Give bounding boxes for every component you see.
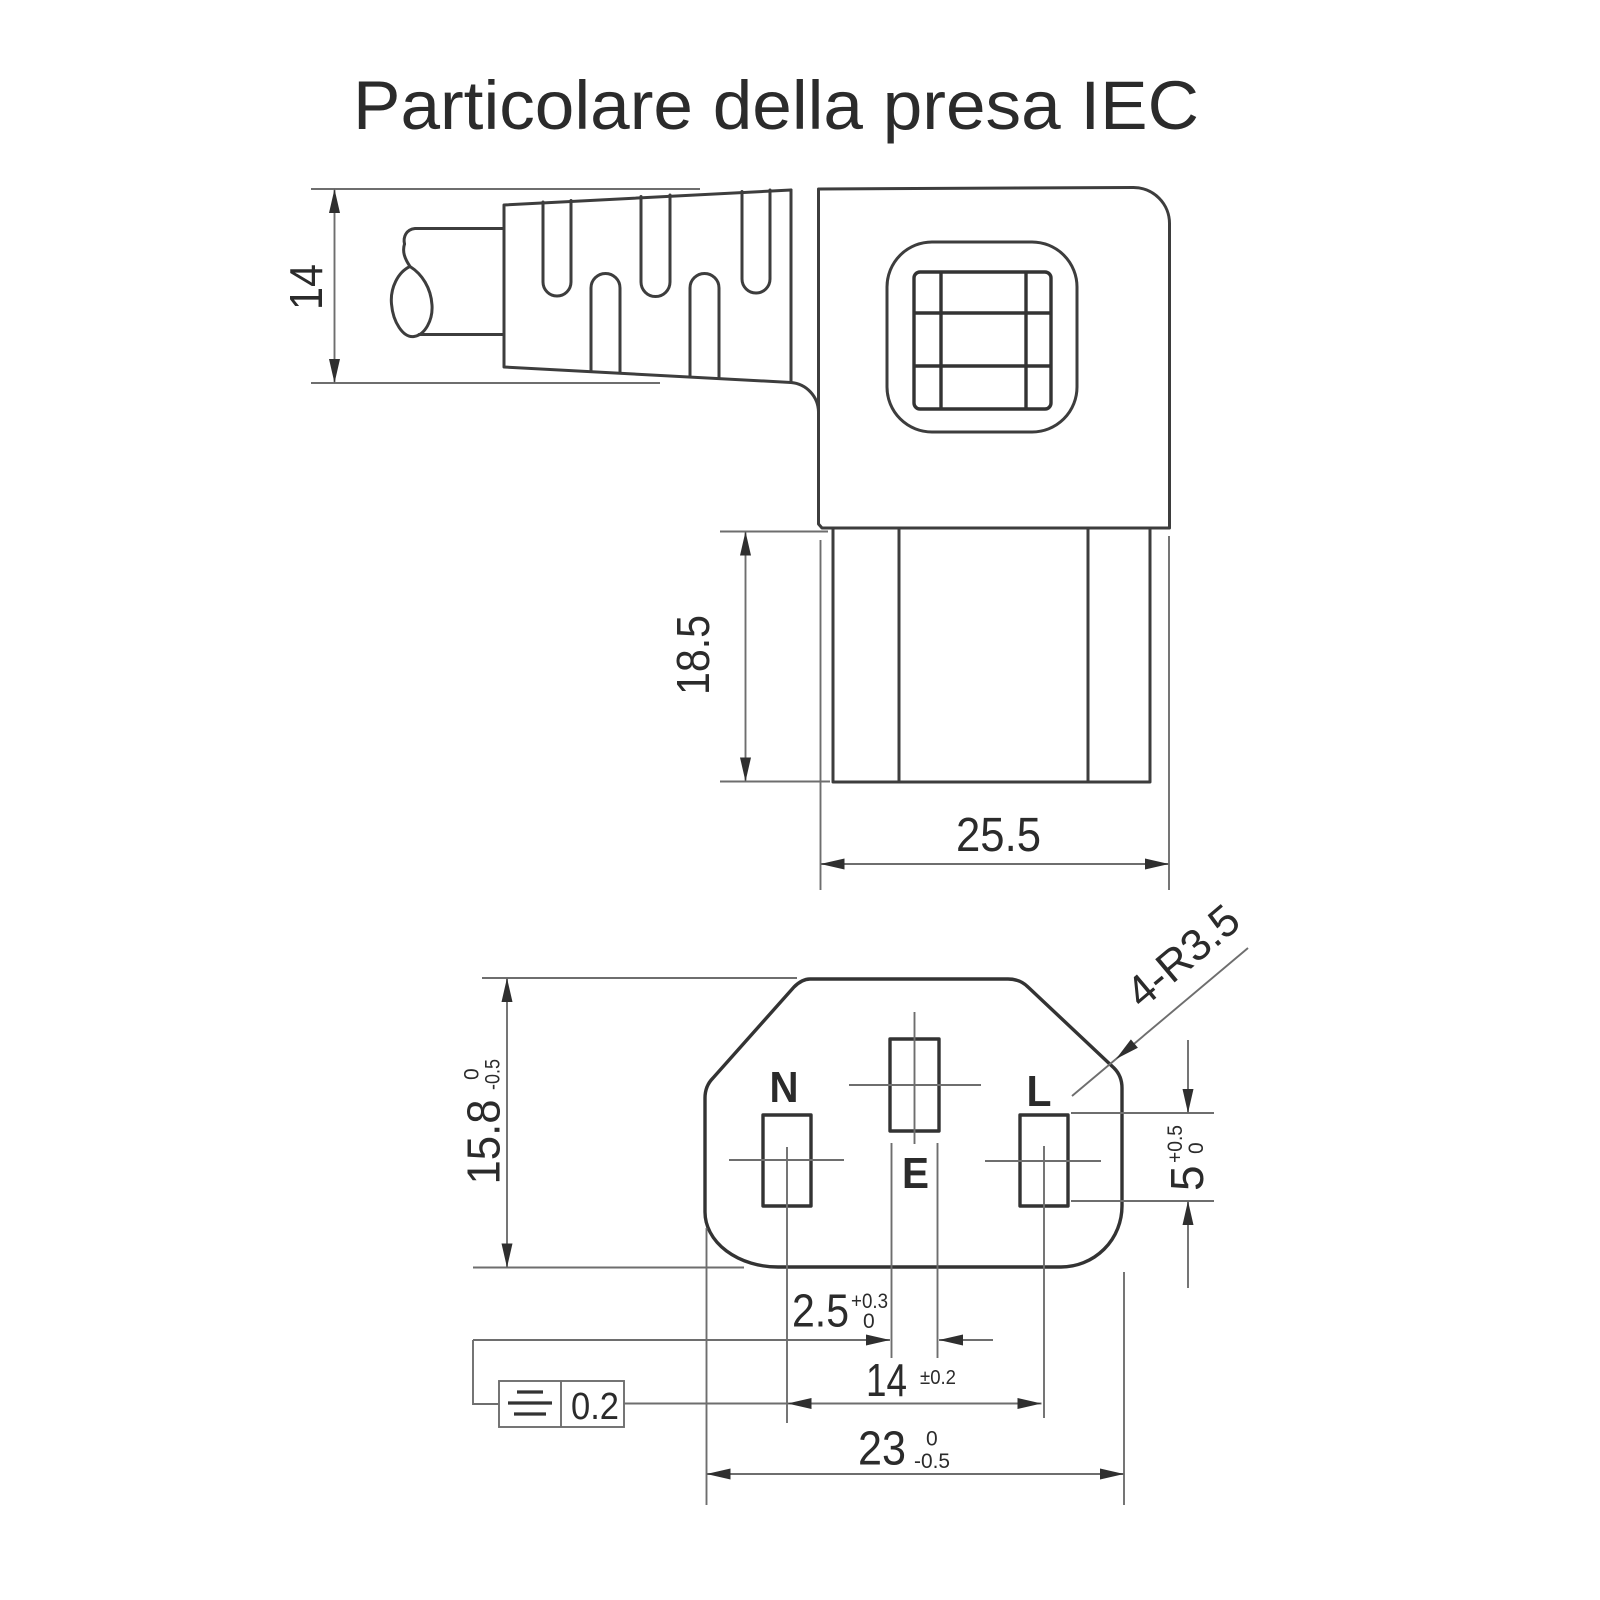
svg-text:±0.2: ±0.2 [920,1367,956,1389]
svg-text:+0.5: +0.5 [1164,1125,1187,1163]
svg-text:0: 0 [461,1068,484,1080]
svg-text:2.5: 2.5 [792,1285,849,1337]
svg-text:L: L [1027,1067,1052,1116]
svg-text:18.5: 18.5 [667,615,719,695]
svg-text:-0.5: -0.5 [914,1450,950,1473]
svg-text:14: 14 [866,1354,907,1406]
svg-text:0.2: 0.2 [571,1386,619,1428]
svg-text:5: 5 [1161,1165,1213,1191]
svg-text:-0.5: -0.5 [482,1059,505,1090]
svg-text:25.5: 25.5 [956,809,1041,862]
svg-text:0: 0 [926,1428,938,1451]
svg-text:E: E [902,1149,929,1198]
svg-text:N: N [770,1063,799,1112]
svg-text:0: 0 [1185,1142,1208,1154]
svg-text:15.8: 15.8 [458,1100,510,1185]
svg-text:0: 0 [863,1310,875,1333]
svg-text:Particolare della presa IEC: Particolare della presa IEC [353,67,1199,144]
svg-text:23: 23 [858,1423,906,1476]
svg-text:14: 14 [280,264,332,310]
